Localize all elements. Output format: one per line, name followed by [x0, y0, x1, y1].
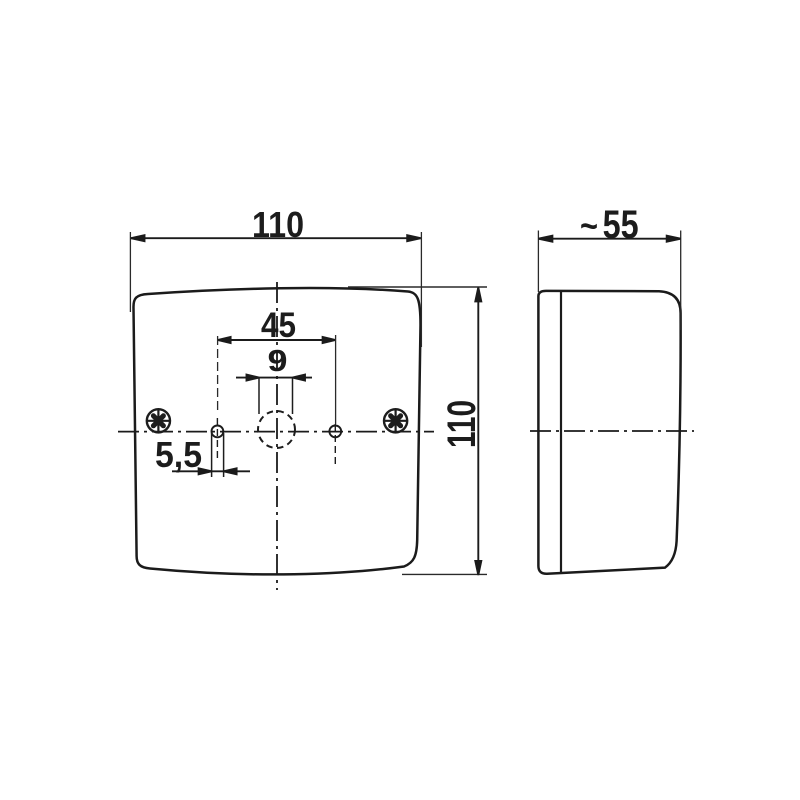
svg-text:55: 55 [603, 203, 639, 247]
svg-text:5,5: 5,5 [155, 434, 202, 475]
svg-text:45: 45 [261, 306, 296, 345]
svg-text:110: 110 [440, 400, 484, 448]
svg-text:110: 110 [252, 204, 304, 245]
svg-text:~: ~ [580, 205, 598, 246]
